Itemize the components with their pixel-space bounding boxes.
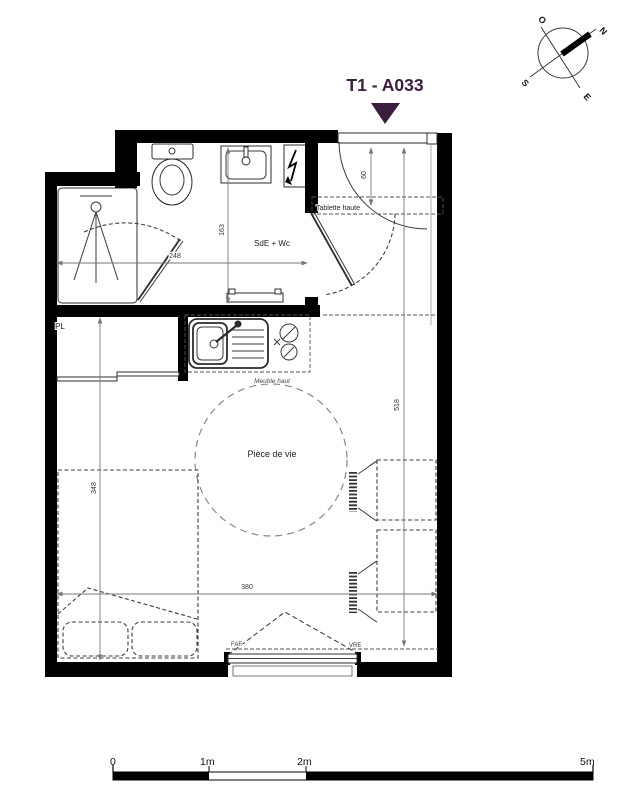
entry-door-swing: [339, 142, 427, 229]
wall-bottom-left: [45, 662, 228, 677]
compass-south-label: S: [520, 77, 531, 88]
hob-burners: [274, 324, 298, 360]
closet-label: PL: [55, 322, 65, 331]
scale-tick-1m: 1m: [200, 756, 215, 768]
window-type-label: FAF: [231, 642, 242, 648]
shutter-type-label: VRE: [349, 643, 361, 649]
bed-cover-fold: [58, 588, 197, 619]
wall-top: [137, 130, 333, 143]
entry-door-jamb-left: [333, 130, 338, 143]
scale-segment-2-5: [306, 772, 593, 780]
electrical-panel: [284, 145, 306, 187]
chair-upper: [353, 461, 377, 521]
pillow-right: [132, 622, 197, 656]
wall-right: [437, 133, 452, 677]
high-cabinet-label: Meuble haut: [254, 378, 291, 385]
bathroom-door: [311, 212, 395, 295]
bathroom-bench: [227, 289, 283, 302]
chair-lower: [353, 561, 377, 622]
bathroom-label: SdE + Wc: [254, 239, 290, 248]
shower-door-leaf: [138, 239, 180, 300]
dim-shelf-depth: 60: [361, 171, 368, 179]
compass-axis-west-east: [541, 27, 580, 88]
window-sill: [233, 666, 352, 676]
wall-top-right-step: [427, 133, 437, 144]
high-shelf-label: Tablette haute: [316, 205, 360, 212]
compass-west-label: O: [536, 14, 548, 26]
drainboard: [232, 330, 264, 358]
kitchenette: [185, 315, 310, 372]
scale-tick-5m: 5m: [580, 756, 595, 768]
toilet: [152, 144, 193, 205]
dim-bathroom-width: 248: [169, 253, 181, 260]
dim-living-length: 518: [394, 399, 401, 411]
floor-plan-page: O N S E T1 - A033: [0, 0, 635, 800]
scale-bar: 0 1m 2m 5m: [110, 756, 595, 780]
unit-pointer-icon: [371, 103, 400, 124]
closet-sliding-doors: [57, 372, 179, 381]
compass-east-label: E: [582, 91, 593, 102]
bed: [58, 470, 198, 658]
scale-segment-0-1: [113, 772, 209, 780]
wall-bathroom-entry: [305, 135, 318, 213]
desk-upper: [377, 460, 436, 520]
entry-door-leaf: [338, 133, 427, 143]
turning-circle: [195, 384, 347, 536]
compass-rose: O N S E: [520, 14, 610, 103]
pillow-left: [63, 622, 128, 656]
dim-living-width: 380: [241, 584, 253, 591]
unit-title-label: T1 - A033: [346, 75, 423, 95]
scale-tick-0: 0: [110, 756, 116, 768]
unit-title: T1 - A033: [346, 75, 423, 124]
floor-plan-drawing: O N S E T1 - A033: [0, 0, 635, 800]
dim-bathroom-depth: 163: [219, 224, 226, 236]
wall-left: [45, 172, 57, 677]
washbasin: [221, 146, 271, 183]
entry-door: [338, 133, 427, 229]
bathroom-door-leaf: [311, 213, 352, 286]
wall-closet-right: [178, 317, 188, 381]
compass-north-label: N: [597, 25, 609, 37]
wall-upper-left: [45, 172, 140, 186]
scale-tick-2m: 2m: [297, 756, 312, 768]
desk-lower: [377, 530, 436, 612]
living-room-label: Pièce de vie: [247, 449, 296, 459]
shower: [58, 188, 183, 303]
dim-sleeping-depth: 348: [91, 482, 98, 494]
